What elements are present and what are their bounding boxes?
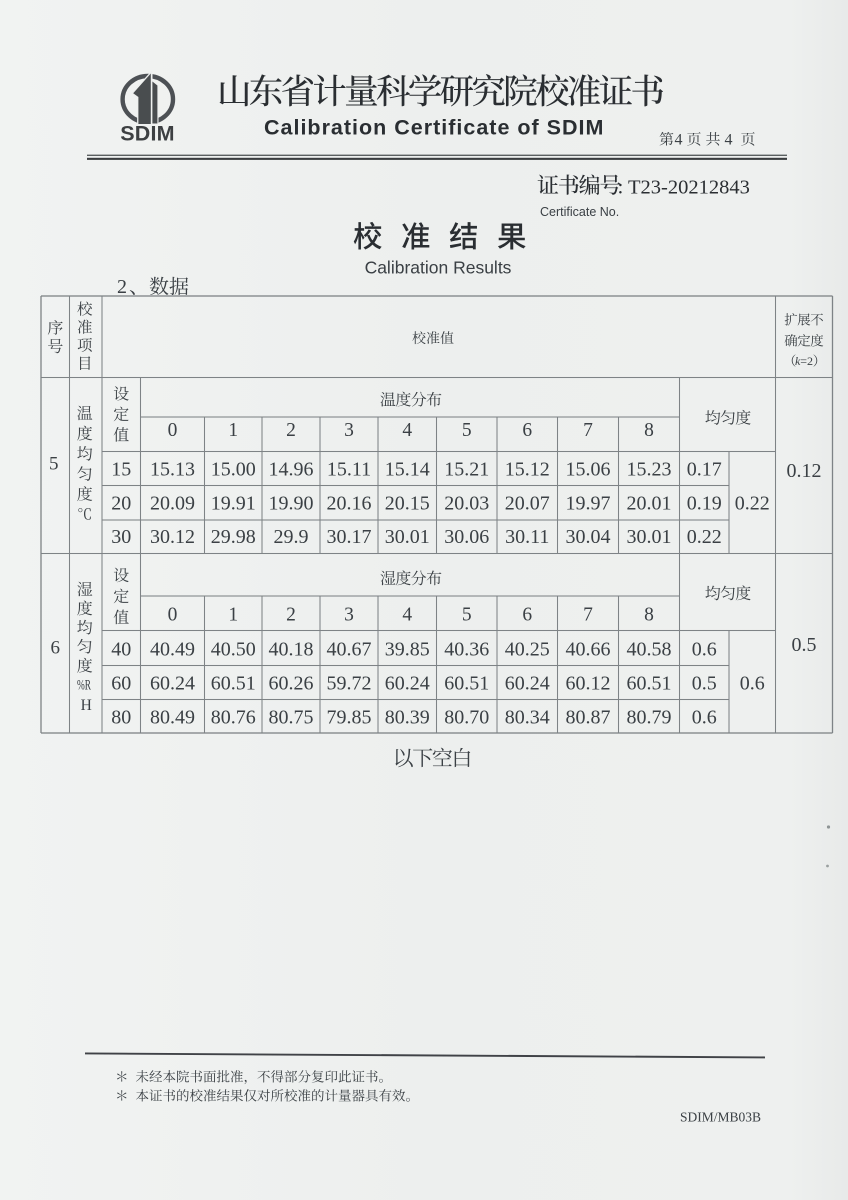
svg-text:4: 4: [402, 605, 412, 626]
svg-text:k=2: k=2: [795, 354, 813, 368]
svg-text:29.9: 29.9: [274, 526, 309, 548]
svg-text:0: 0: [168, 420, 178, 441]
svg-text:15.23: 15.23: [627, 459, 672, 481]
svg-text:2: 2: [286, 420, 296, 441]
svg-text:40: 40: [111, 639, 131, 661]
svg-text:Certificate No.: Certificate No.: [540, 205, 619, 219]
svg-text:79.85: 79.85: [327, 707, 372, 729]
svg-text:6: 6: [51, 638, 61, 659]
svg-text:0.17: 0.17: [687, 459, 722, 481]
svg-text:0.19: 0.19: [687, 493, 722, 515]
svg-text:80.34: 80.34: [505, 707, 550, 729]
svg-text:SDIM/MB03B: SDIM/MB03B: [680, 1110, 761, 1125]
svg-text:20.03: 20.03: [444, 493, 489, 515]
svg-text:80: 80: [111, 707, 131, 729]
svg-text:60.51: 60.51: [211, 673, 256, 695]
svg-text:15.13: 15.13: [150, 459, 195, 481]
svg-text:15: 15: [111, 459, 131, 481]
svg-text:80.70: 80.70: [444, 707, 489, 729]
svg-text:30.11: 30.11: [505, 526, 549, 548]
svg-text:60.24: 60.24: [150, 673, 195, 695]
svg-text:60.12: 60.12: [566, 673, 611, 695]
svg-text:%R: %R: [77, 678, 91, 694]
svg-text:8: 8: [644, 605, 654, 626]
svg-text:15.11: 15.11: [327, 459, 371, 481]
svg-text:0.5: 0.5: [692, 673, 717, 695]
svg-text:1: 1: [228, 605, 238, 626]
svg-text:60.51: 60.51: [627, 673, 672, 695]
svg-text:60.51: 60.51: [444, 673, 489, 695]
svg-text:19.97: 19.97: [566, 493, 611, 515]
svg-text:20.09: 20.09: [150, 493, 195, 515]
svg-text:29.98: 29.98: [211, 526, 256, 548]
svg-text:T23-20212843: T23-20212843: [628, 177, 750, 199]
svg-text:15.21: 15.21: [444, 459, 489, 481]
svg-text:60.26: 60.26: [269, 673, 314, 695]
svg-text:4: 4: [402, 420, 412, 441]
svg-text:40.66: 40.66: [566, 639, 611, 661]
svg-text:40.50: 40.50: [211, 639, 256, 661]
svg-text:0.12: 0.12: [787, 460, 822, 482]
svg-text:30.17: 30.17: [327, 526, 372, 548]
svg-text:20.15: 20.15: [385, 493, 430, 515]
svg-text:2: 2: [286, 605, 296, 626]
svg-text:5: 5: [49, 454, 59, 475]
svg-text:59.72: 59.72: [327, 673, 372, 695]
svg-text:6: 6: [522, 605, 532, 626]
svg-text:20.07: 20.07: [505, 493, 550, 515]
svg-text:8: 8: [644, 420, 654, 441]
svg-text:Calibration Certificate of SDI: Calibration Certificate of SDIM: [264, 116, 604, 140]
svg-text:20.01: 20.01: [627, 493, 672, 515]
svg-text:40.18: 40.18: [269, 639, 314, 661]
svg-text:40.67: 40.67: [327, 639, 372, 661]
svg-text:30.04: 30.04: [566, 526, 611, 548]
svg-text:80.87: 80.87: [566, 707, 611, 729]
svg-text:30.01: 30.01: [385, 526, 430, 548]
svg-text:15.00: 15.00: [211, 459, 256, 481]
svg-text:15.12: 15.12: [505, 459, 550, 481]
svg-text::: :: [618, 175, 624, 199]
svg-text:Calibration Results: Calibration Results: [365, 258, 512, 278]
svg-text:60.24: 60.24: [505, 673, 550, 695]
svg-text:40.58: 40.58: [627, 639, 672, 661]
svg-text:2: 2: [117, 276, 127, 298]
svg-text:20.16: 20.16: [327, 493, 372, 515]
svg-text:80.75: 80.75: [269, 707, 314, 729]
svg-text:80.39: 80.39: [385, 707, 430, 729]
svg-text:4: 4: [675, 132, 683, 149]
svg-text:15.14: 15.14: [385, 459, 430, 481]
svg-text:0.6: 0.6: [692, 707, 717, 729]
svg-text:30.12: 30.12: [150, 526, 195, 548]
svg-text:0.5: 0.5: [792, 634, 817, 656]
svg-text:15.06: 15.06: [566, 459, 611, 481]
svg-text:0.22: 0.22: [735, 493, 770, 515]
svg-text:80.49: 80.49: [150, 707, 195, 729]
svg-text:1: 1: [228, 420, 238, 441]
svg-text:H: H: [81, 697, 92, 714]
svg-text:39.85: 39.85: [385, 639, 430, 661]
svg-text:60: 60: [111, 673, 131, 695]
svg-text:0.6: 0.6: [740, 673, 765, 695]
svg-text:0.6: 0.6: [692, 639, 717, 661]
svg-text:30: 30: [111, 526, 131, 548]
svg-text:7: 7: [583, 605, 593, 626]
svg-text:SDIM: SDIM: [120, 122, 175, 146]
svg-text:40.49: 40.49: [150, 639, 195, 661]
svg-text:6: 6: [522, 420, 532, 441]
svg-text:7: 7: [583, 420, 593, 441]
svg-text:30.01: 30.01: [627, 526, 672, 548]
svg-text:80.79: 80.79: [627, 707, 672, 729]
svg-text:3: 3: [344, 605, 354, 626]
svg-text:5: 5: [462, 605, 472, 626]
svg-text:0.22: 0.22: [687, 526, 722, 548]
svg-text:4: 4: [725, 132, 733, 149]
svg-text:40.25: 40.25: [505, 639, 550, 661]
svg-text:19.91: 19.91: [211, 493, 256, 515]
svg-text:80.76: 80.76: [211, 707, 256, 729]
svg-text:40.36: 40.36: [444, 639, 489, 661]
svg-text:0: 0: [168, 605, 178, 626]
svg-text:60.24: 60.24: [385, 673, 430, 695]
svg-text:5: 5: [462, 420, 472, 441]
svg-text:3: 3: [344, 420, 354, 441]
svg-text:30.06: 30.06: [444, 526, 489, 548]
svg-text:19.90: 19.90: [269, 493, 314, 515]
svg-text:14.96: 14.96: [269, 459, 314, 481]
svg-text:20: 20: [111, 493, 131, 515]
